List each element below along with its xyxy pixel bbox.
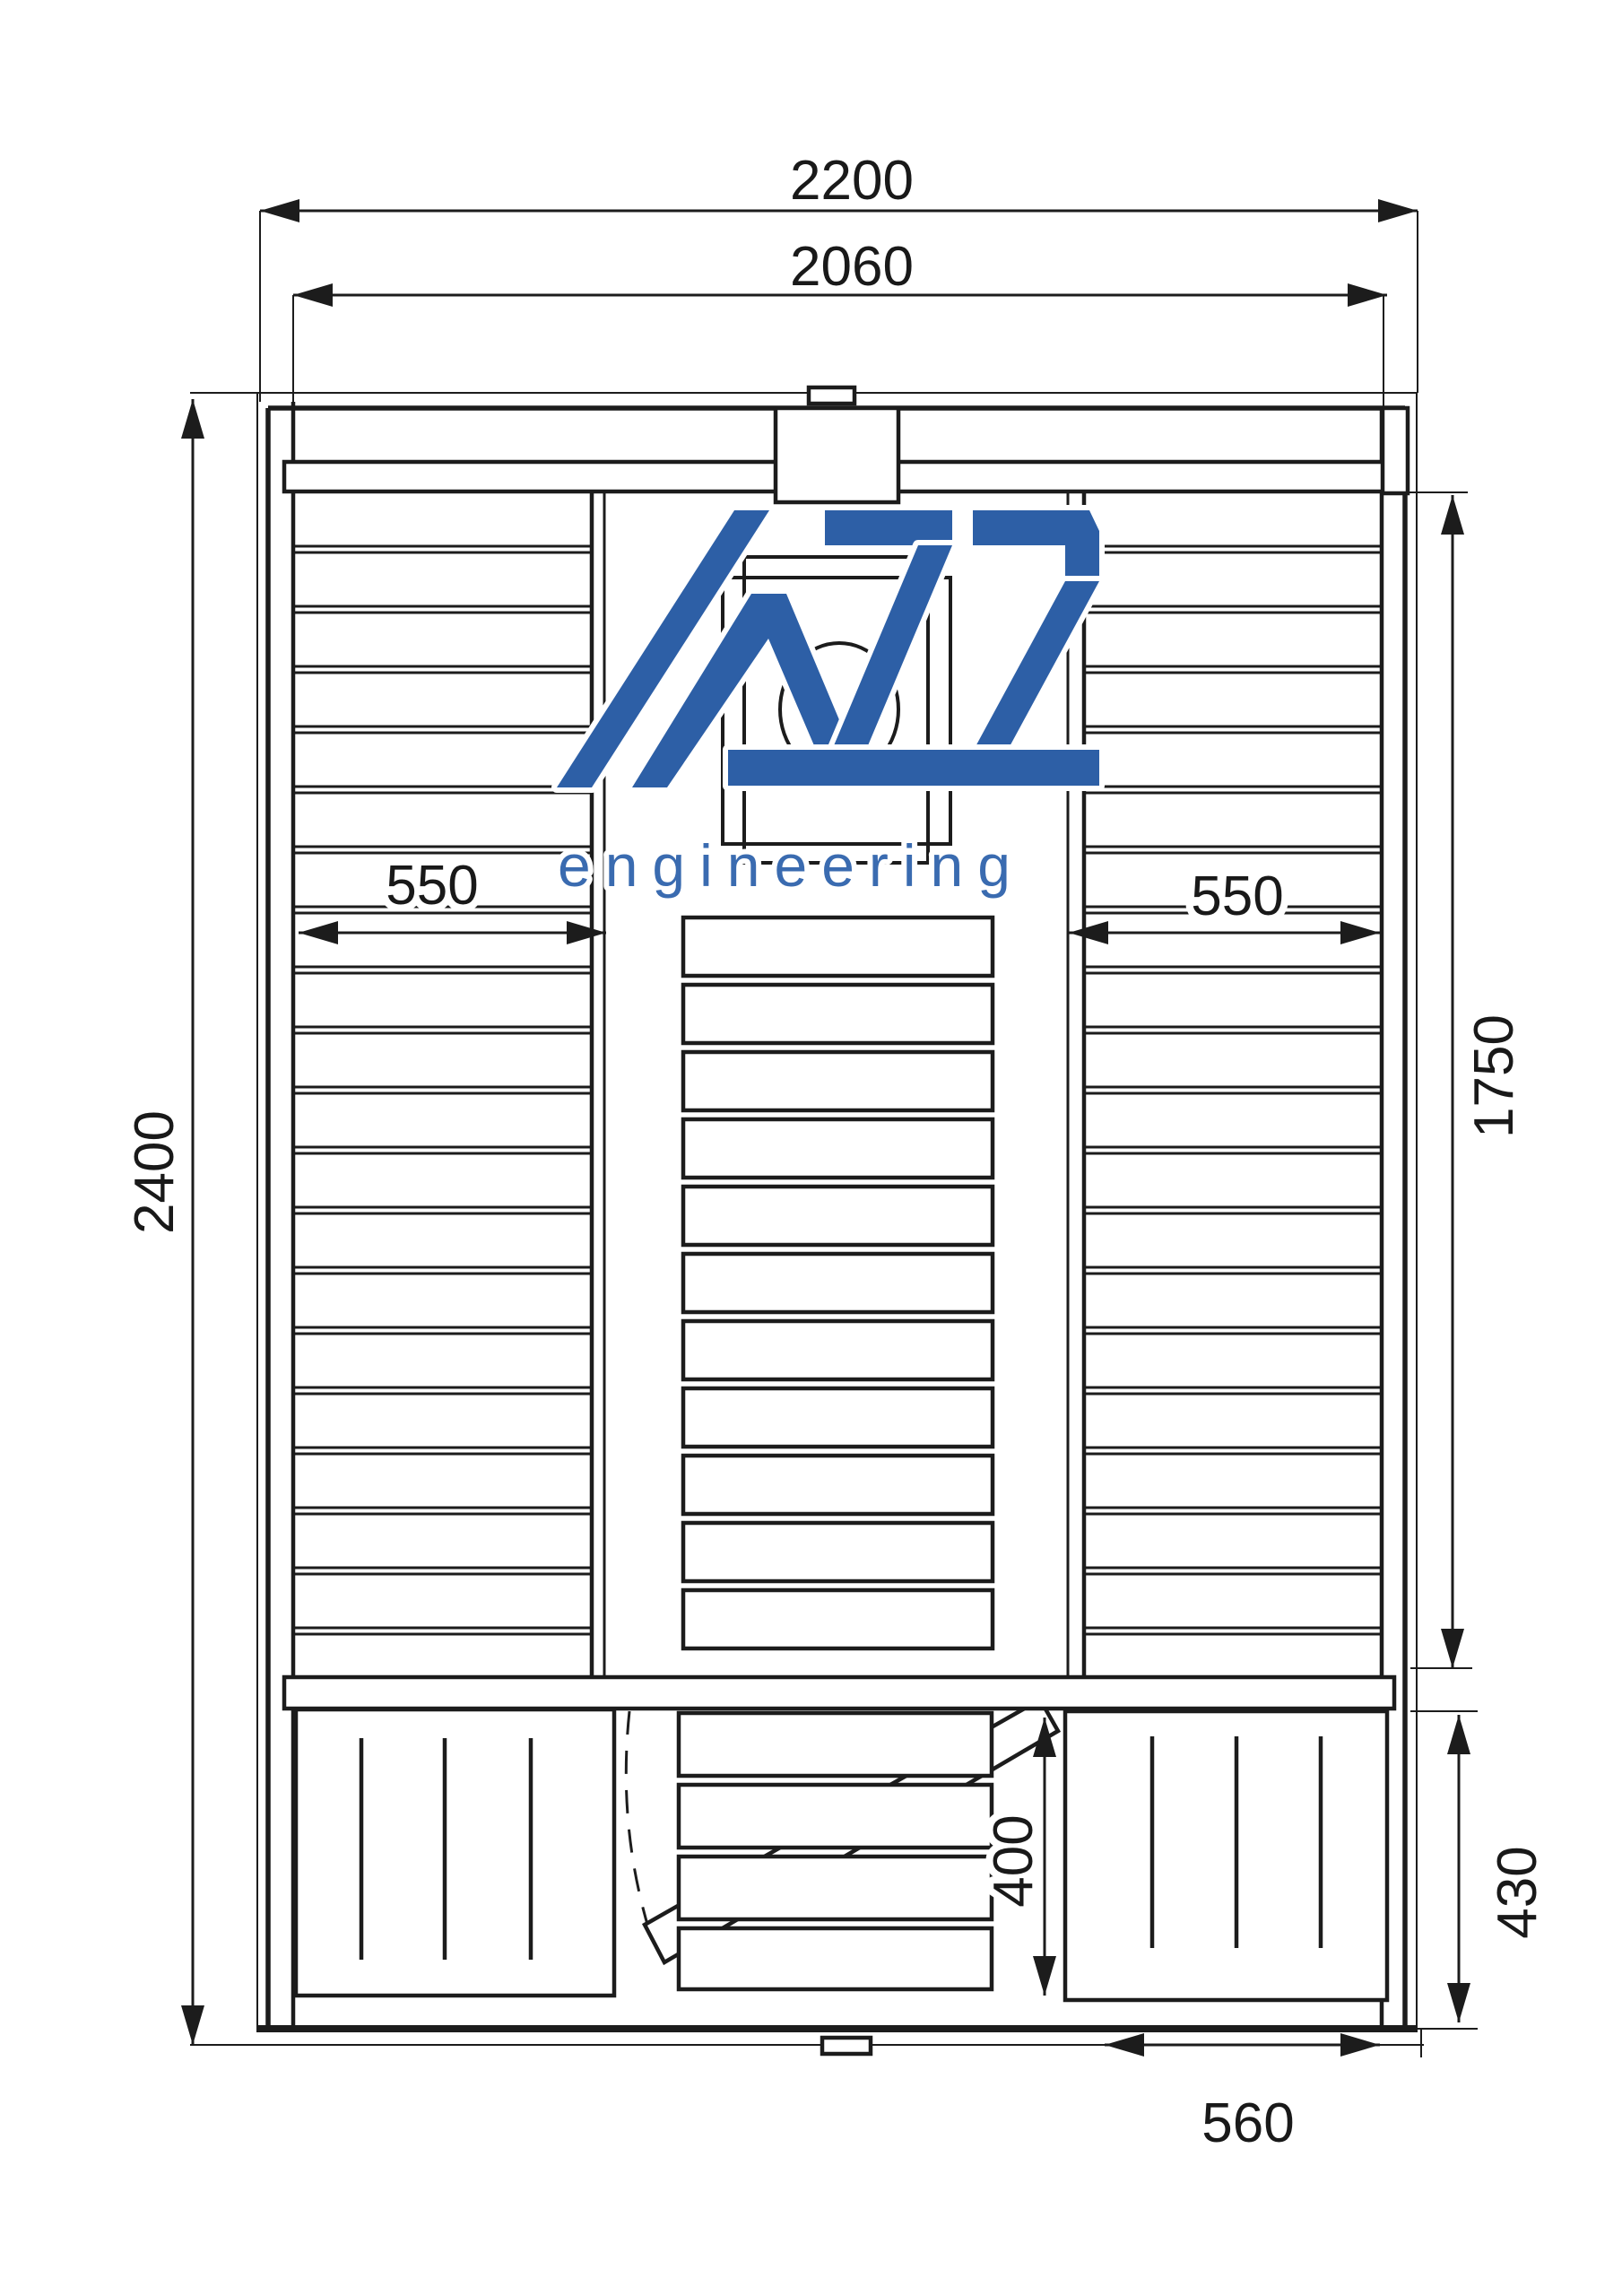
dim-label-left-bench: 550 [386, 855, 478, 917]
center-slat [683, 1388, 993, 1447]
center-slat [683, 985, 993, 1043]
left-bench [293, 491, 604, 1677]
wall-vent-bottom [822, 2038, 871, 2054]
dim-right-side: 1750 [1441, 495, 1525, 1668]
floor-slat [679, 1785, 992, 1848]
center-slat [683, 1052, 993, 1110]
right-bench [1068, 491, 1383, 1677]
dim-front-right-width: 560 [1105, 2033, 1380, 2154]
center-slat [683, 1119, 993, 1178]
center-slat [683, 1321, 993, 1379]
dim-label-inner-width: 2060 [790, 236, 914, 298]
dim-label-front-right-depth: 430 [1487, 1846, 1548, 1938]
floor-slat [679, 1857, 992, 1919]
dim-label-right-side: 1750 [1463, 1014, 1525, 1138]
center-slat [683, 1590, 993, 1648]
dim-right-bench: 550 [1069, 865, 1380, 944]
center-slat [683, 918, 993, 976]
logo: AZS engineering [557, 510, 1099, 899]
heater-chimney [776, 408, 898, 502]
door-swing-arc [626, 1711, 652, 1939]
bottom-right-bench [1065, 1711, 1387, 2000]
center-slat [683, 1456, 993, 1514]
center-slat [683, 1187, 993, 1245]
bottom-left-bench [296, 1709, 614, 1996]
floor-slat [679, 1713, 992, 1776]
dim-outer-width: 2200 [260, 150, 1418, 222]
bench-front-rail [284, 1677, 1394, 1709]
dim-label-total-depth: 2400 [124, 1110, 186, 1234]
center-slat [683, 1254, 993, 1312]
blueprint-canvas: 2200 2060 2400 550 550 1750 400 [0, 0, 1622, 2296]
dim-label-front-right-width: 560 [1201, 2092, 1294, 2154]
wall-vent-top [809, 387, 854, 404]
dim-inner-width: 2060 [293, 236, 1387, 307]
logo-subtitle: engineering [558, 832, 1025, 899]
corner-post [1383, 408, 1408, 493]
dim-front-right-depth: 430 [1447, 1715, 1548, 2022]
floor-slat [679, 1928, 992, 1989]
dim-label-door-area: 400 [983, 1814, 1045, 1907]
center-slat [683, 1523, 993, 1581]
dim-total-depth: 2400 [124, 399, 204, 2045]
center-slats [683, 918, 993, 1648]
dim-label-outer-width: 2200 [790, 150, 914, 212]
dim-label-right-bench: 550 [1191, 865, 1283, 927]
